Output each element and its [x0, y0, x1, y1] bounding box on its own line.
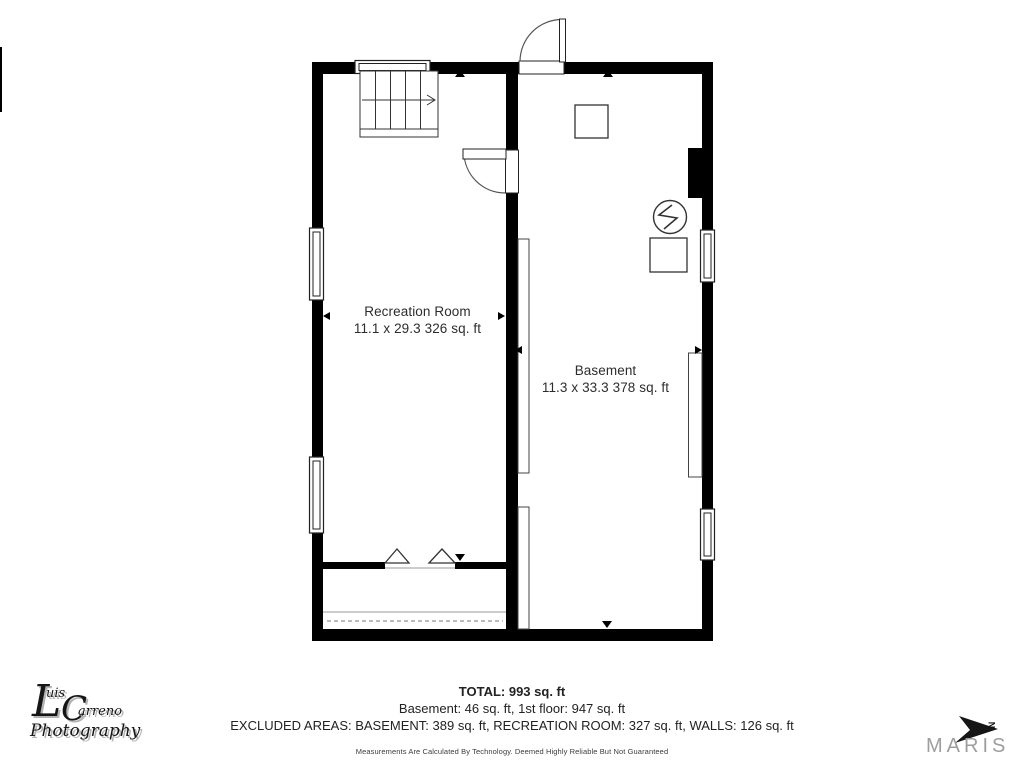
room-dimensions: 11.1 x 29.3 326 sq. ft — [340, 320, 495, 337]
dividing-wall — [506, 62, 518, 641]
logo-arreno: arreno — [78, 704, 122, 719]
window-left-upper — [310, 228, 324, 300]
utility-square-top — [575, 105, 608, 138]
double-doors — [385, 549, 455, 570]
floor-plan-drawing — [0, 0, 1024, 768]
chimney-block — [688, 148, 713, 198]
logo-letter-l: L — [32, 676, 61, 727]
window-left-lower — [310, 457, 324, 533]
floor-break-lines — [323, 612, 506, 621]
room-label-recreation: Recreation Room 11.1 x 29.3 326 sq. ft — [340, 303, 495, 337]
exterior-door — [519, 19, 566, 74]
room-name: Recreation Room — [340, 303, 495, 320]
window-right-lower — [701, 509, 715, 560]
total-area-text: TOTAL: 993 sq. ft — [0, 683, 1024, 700]
room-name: Basement — [528, 362, 683, 379]
edge-artifact-line — [0, 47, 2, 112]
utility-square-right — [650, 238, 687, 272]
north-label: N — [986, 722, 996, 729]
floor-areas-text: Basement: 46 sq. ft, 1st floor: 947 sq. … — [0, 700, 1024, 717]
photographer-logo: L uis C arreno Photography — [28, 680, 138, 750]
stairs — [360, 71, 438, 137]
maris-logo: MARIS — [926, 735, 1009, 758]
floor-plan-page: Recreation Room 11.1 x 29.3 326 sq. ft B… — [0, 0, 1024, 768]
wall-chases — [518, 239, 702, 629]
area-summary: TOTAL: 993 sq. ft Basement: 46 sq. ft, 1… — [0, 683, 1024, 760]
electrical-panel-icon — [654, 201, 687, 234]
room-dimensions: 11.3 x 33.3 378 sq. ft — [528, 379, 683, 396]
disclaimer-text: Measurements Are Calculated By Technolog… — [0, 743, 1024, 760]
excluded-areas-text: EXCLUDED AREAS: BASEMENT: 389 sq. ft, RE… — [0, 717, 1024, 734]
window-right-upper — [701, 230, 715, 282]
interior-door — [463, 149, 519, 193]
room-label-basement: Basement 11.3 x 33.3 378 sq. ft — [528, 362, 683, 396]
logo-photography: Photography — [30, 721, 140, 741]
